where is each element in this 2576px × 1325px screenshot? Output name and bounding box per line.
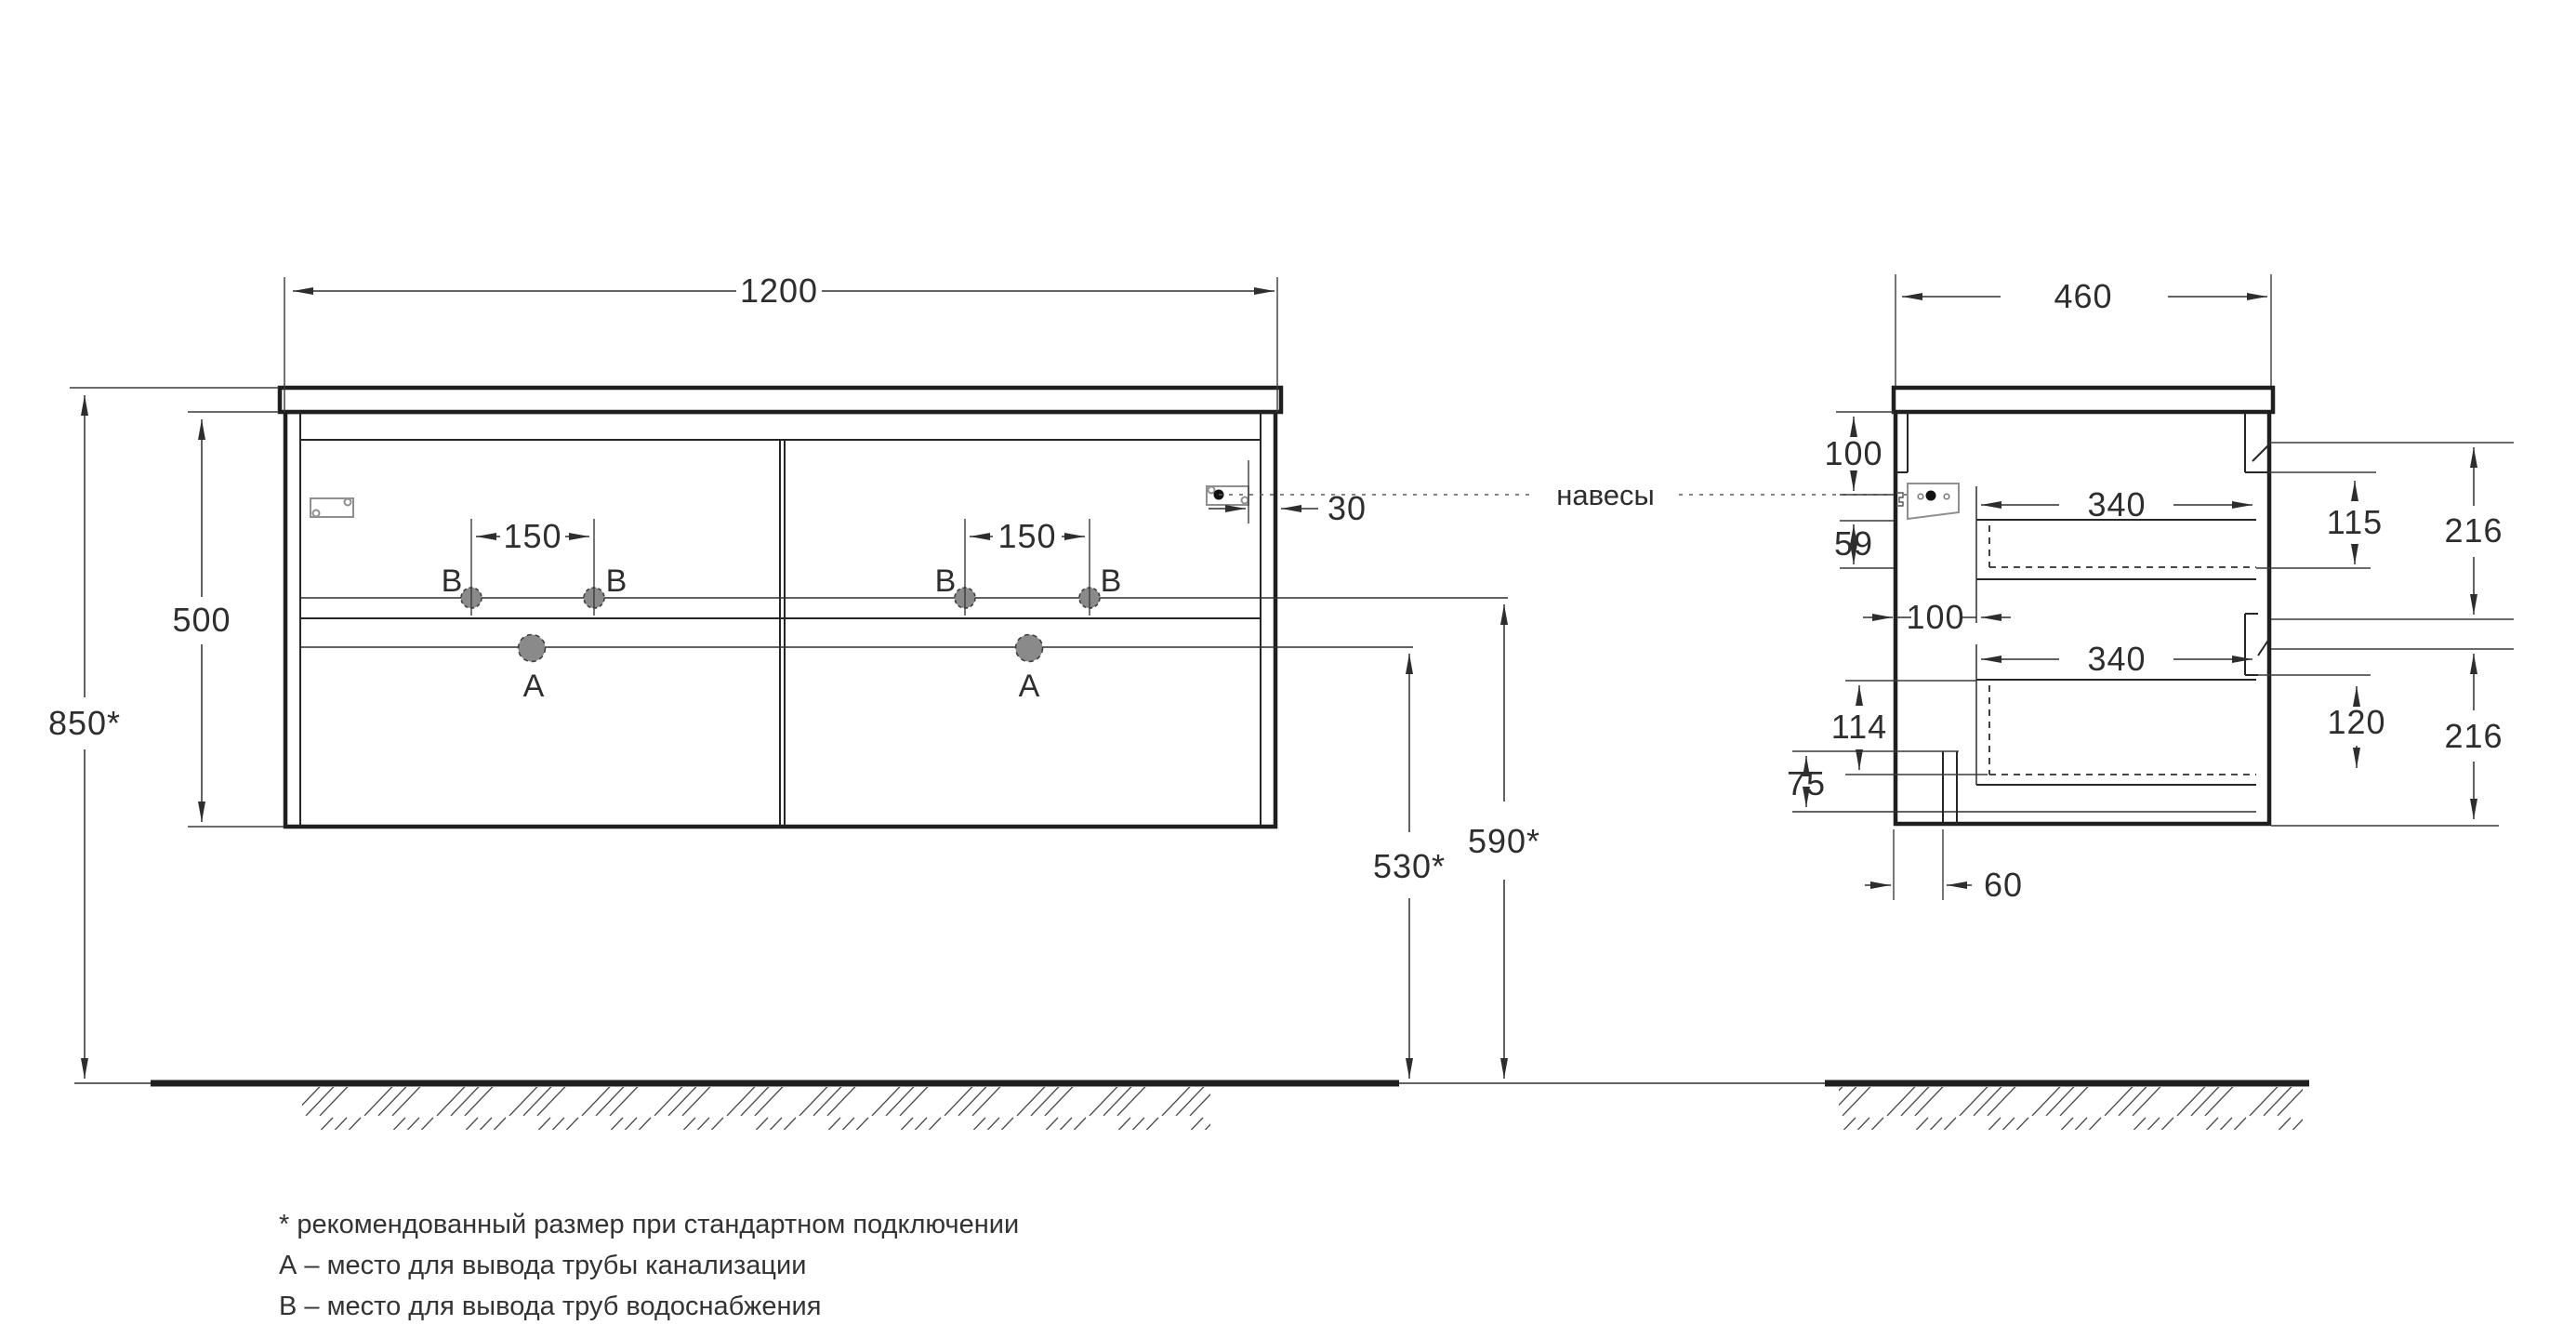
svg-text:1200: 1200 — [740, 272, 818, 310]
svg-text:100: 100 — [1824, 434, 1882, 472]
svg-text:500: 500 — [172, 601, 231, 639]
label-b4: B — [1101, 563, 1122, 599]
label-a2: A — [1019, 669, 1040, 704]
svg-text:340: 340 — [2087, 485, 2146, 523]
svg-text:115: 115 — [2327, 503, 2383, 541]
side-view: 460 100 59 340 340 — [1787, 274, 2514, 904]
drain-hole-a2 — [1016, 635, 1043, 662]
front-view: B B B B A A 1200 500 850* — [48, 272, 1540, 1079]
dim-120: 120 — [2327, 686, 2385, 768]
dim-75: 75 — [1787, 756, 1826, 807]
front-countertop — [280, 388, 1281, 412]
label-b2: B — [606, 563, 627, 599]
svg-text:150: 150 — [997, 517, 1056, 555]
svg-text:100: 100 — [1906, 598, 1964, 636]
technical-drawing: B B B B A A 1200 500 850* — [0, 0, 2576, 1325]
svg-text:340: 340 — [2087, 640, 2146, 678]
dim-460: 460 — [1896, 274, 2271, 386]
dim-100-back: 100 — [1863, 598, 2011, 636]
dim-216-top: 216 — [2444, 447, 2503, 615]
label-b3: B — [935, 563, 957, 599]
ground — [74, 1083, 2309, 1130]
svg-text:120: 120 — [2327, 703, 2385, 741]
side-top-bracket-diagonal — [2252, 444, 2269, 461]
dim-114: 114 — [1831, 685, 1887, 770]
legend-line-1: * рекомендованный размер при стандартном… — [279, 1210, 1019, 1239]
label-a1: A — [523, 669, 545, 704]
svg-text:530*: 530* — [1373, 847, 1446, 885]
svg-text:75: 75 — [1787, 764, 1826, 802]
wall-hanger-point — [1926, 491, 1936, 501]
svg-text:216: 216 — [2444, 511, 2503, 550]
side-extension-lines — [1792, 412, 2514, 826]
dim-59: 59 — [1834, 524, 1873, 564]
svg-text:59: 59 — [1834, 524, 1873, 563]
hangers-label: навесы — [1556, 479, 1655, 511]
hinge-right — [1207, 486, 1248, 505]
svg-text:460: 460 — [2054, 277, 2112, 315]
dim-530: 530* — [1373, 654, 1446, 1079]
dim-500: 500 — [172, 412, 284, 827]
hangers-callout: навесы — [1219, 479, 1908, 511]
wall-hanger — [1896, 484, 1959, 519]
svg-text:114: 114 — [1831, 708, 1887, 746]
dim-340-top: 340 — [1981, 485, 2252, 523]
drawing-page: B B B B A A 1200 500 850* — [0, 0, 2576, 1325]
svg-text:216: 216 — [2444, 717, 2503, 755]
ground-hatch-front — [302, 1087, 1210, 1130]
svg-text:60: 60 — [1984, 866, 2023, 904]
legend-line-2: А – место для вывода трубы канализации — [279, 1251, 806, 1280]
dim-216-bottom: 216 — [2444, 654, 2503, 819]
svg-text:590*: 590* — [1468, 822, 1540, 860]
dim-590: 590* — [1468, 604, 1540, 1079]
rear-foot — [1943, 751, 1957, 824]
label-b1: B — [442, 563, 463, 599]
side-countertop — [1894, 388, 2273, 412]
hinge-left — [310, 498, 353, 517]
svg-text:150: 150 — [503, 517, 561, 555]
legend-line-3: B – место для вывода труб водоснабжения — [279, 1292, 821, 1321]
dim-100-top: 100 — [1824, 417, 1882, 491]
ground-hatch-side — [1839, 1087, 2303, 1130]
dim-340-bottom: 340 — [1981, 640, 2252, 678]
svg-text:850*: 850* — [48, 704, 121, 742]
drain-hole-a1 — [519, 635, 546, 662]
dim-850: 850* — [48, 388, 279, 1079]
legend: * рекомендованный размер при стандартном… — [279, 1210, 1019, 1321]
dim-60: 60 — [1865, 829, 2023, 904]
dim-115: 115 — [2327, 481, 2383, 564]
